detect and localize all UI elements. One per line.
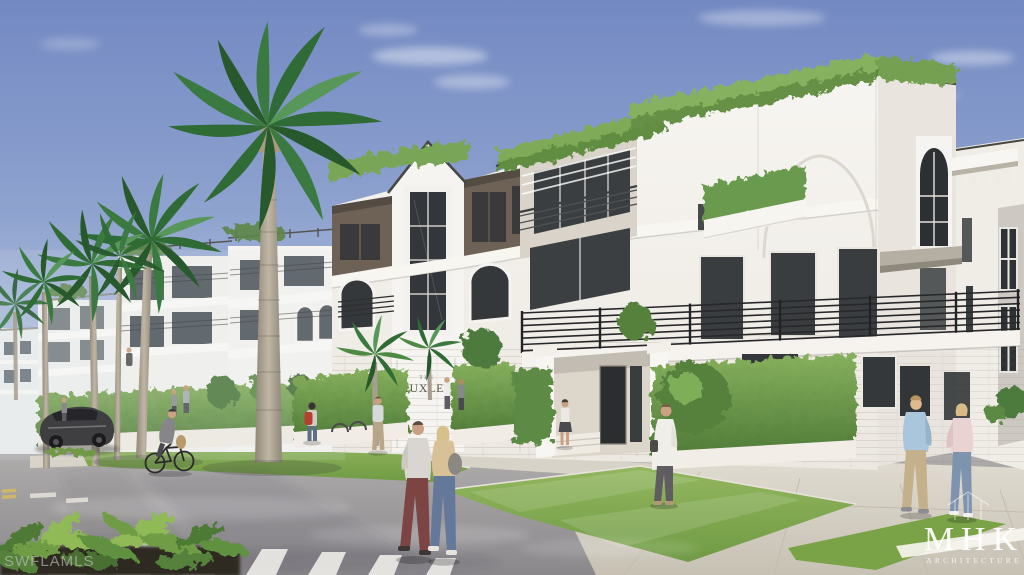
- bronze-panel-left: [332, 196, 392, 276]
- bush-highlight: [670, 372, 702, 404]
- entrance-door: [600, 366, 626, 444]
- grass-tuft-front: [44, 448, 96, 456]
- watermark-swflamls: SWFLAMLS: [4, 553, 95, 570]
- gray-tote-bag: [448, 453, 462, 475]
- slit-window-2: [962, 218, 972, 262]
- hedge-entry-left: [514, 368, 552, 446]
- entrance: [533, 341, 671, 458]
- entrance-sidelight: [630, 366, 642, 442]
- topiary-tree-1: [462, 328, 502, 368]
- topiary-tree-2: [618, 304, 654, 340]
- mhk-logo-text: MHK: [924, 521, 1024, 558]
- corner-shrub-2: [986, 404, 1006, 424]
- rendering-canvas: THE HUXLEY: [0, 0, 1024, 575]
- arched-window-a2: [470, 264, 510, 322]
- mhk-logo-subtext: ARCHITECTURE: [926, 556, 1021, 565]
- cross-window-upper: [1000, 228, 1017, 290]
- watermark-mls-text: SWFLAMLS: [4, 553, 95, 570]
